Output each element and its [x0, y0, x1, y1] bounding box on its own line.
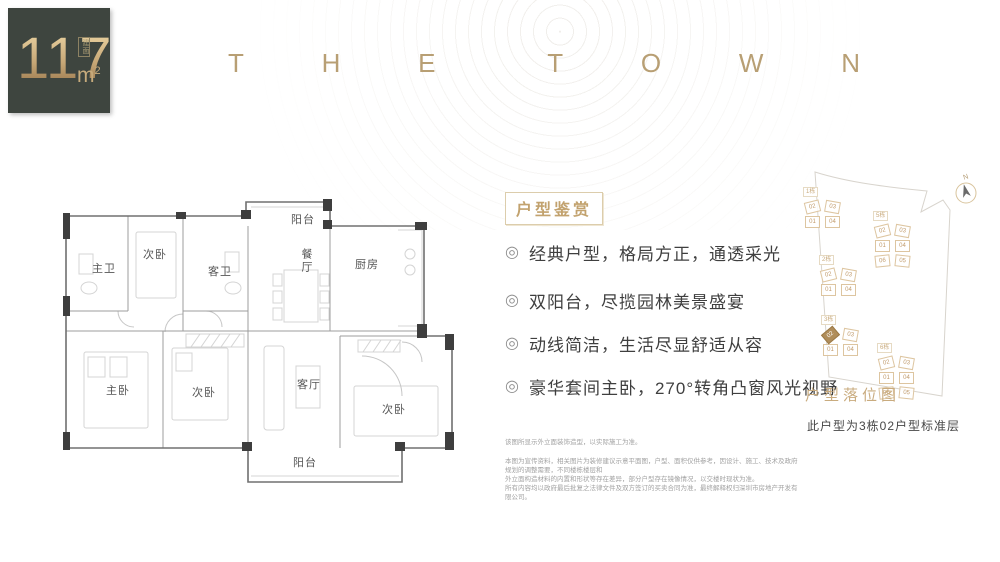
disclaimer-intro: 该图所显示外立面装饰造型，以实际施工为准。 — [505, 438, 801, 447]
area-badge: 117 建面 m2 — [8, 8, 110, 113]
compass: N — [951, 174, 981, 208]
unit-chip: 03 — [824, 200, 841, 214]
disclaimer: 该图所显示外立面装饰造型，以实际施工为准。 本图为宣传资料，相关图片为装修建议示… — [505, 438, 801, 502]
unit-chip: 03 — [842, 328, 859, 342]
map-cluster-3: 3栋 02 03 01 04 — [821, 308, 860, 356]
floor-plan-drawing — [58, 196, 462, 498]
unit-chip: 04 — [895, 240, 910, 252]
brand-letter: N — [841, 48, 860, 78]
unit-chip: 04 — [825, 216, 840, 228]
unit-chip: 05 — [898, 386, 914, 400]
unit-chip: 04 — [899, 372, 914, 384]
disclaimer-line: 所有内容均以政府最后批复之法律文件及双方签订的买卖合同为准，最终解释权归深圳市房… — [505, 484, 801, 502]
feature-text: 双阳台，尽揽园林美景盛宴 — [529, 288, 745, 313]
cluster-label: 1栋 — [803, 187, 818, 197]
room-label-bedroom-top: 次卧 — [143, 246, 167, 262]
disclaimer-line: 本图为宣传资料，相关图片为装修建议示意平面图，户型、面积仅供参考，因设计、施工、… — [505, 457, 801, 475]
unit-chip: 04 — [843, 344, 858, 356]
compass-icon — [954, 181, 978, 205]
map-caption: 此户型为3栋02户型标准层 — [807, 417, 960, 434]
unit-chip: 01 — [875, 240, 890, 252]
brand-wordmark: T H E T O W N — [228, 48, 860, 78]
feature-item: ◎ 双阳台，尽揽园林美景盛宴 — [505, 288, 745, 313]
unit-chip: 04 — [841, 284, 856, 296]
cluster-label: 2栋 — [819, 255, 834, 265]
brand-letter: H — [322, 48, 341, 78]
unit-chip: 02 — [874, 223, 891, 238]
room-label-balcony-top: 阳台 — [291, 211, 315, 227]
room-label-bedroom-right: 次卧 — [382, 401, 406, 417]
room-label-master-bath: 主卫 — [92, 260, 116, 276]
bullseye-bullet-icon: ◎ — [505, 379, 519, 395]
brand-letter: E — [418, 48, 435, 78]
area-unit-base: m — [77, 64, 95, 87]
room-label-living: 客厅 — [297, 376, 321, 392]
map-cluster-2: 2栋 02 03 01 04 — [819, 248, 858, 296]
brand-letter: O — [641, 48, 661, 78]
floor-plan: 主卫 次卧 客卫 阳台 餐厅 厨房 主卧 次卧 客厅 次卧 阳台 — [58, 196, 462, 498]
room-label-guest-bath: 客卫 — [208, 263, 232, 279]
feature-item: ◎ 经典户型，格局方正，通透采光 — [505, 240, 781, 265]
feature-text: 动线简洁，生活尽显舒适从容 — [529, 331, 763, 356]
site-location-map: 1栋 02 03 01 04 2栋 02 03 01 04 3栋 02 03 0… — [793, 160, 997, 460]
brand-letter: T — [547, 48, 563, 78]
feature-item: ◎ 动线简洁，生活尽显舒适从容 — [505, 331, 763, 356]
disclaimer-line: 外立面构造材料的内置和形状等存在差异，部分户型存在镜像情况，以交楼时现状为准。 — [505, 475, 801, 484]
bullseye-bullet-icon: ◎ — [505, 245, 519, 261]
unit-chip: 01 — [805, 216, 820, 228]
area-unit-sup: 2 — [95, 65, 101, 77]
map-cluster-1: 1栋 02 03 01 04 — [803, 180, 842, 228]
brand-letter: W — [739, 48, 764, 78]
room-label-bedroom-left: 次卧 — [192, 384, 216, 400]
bullseye-bullet-icon: ◎ — [505, 336, 519, 352]
map-title: 户型落位图 — [805, 384, 900, 405]
features-title: 户型鉴赏 — [505, 192, 603, 225]
unit-chip: 05 — [894, 254, 910, 268]
unit-chip: 02 — [878, 355, 895, 370]
unit-chip: 02 — [804, 199, 821, 214]
unit-chip: 01 — [821, 284, 836, 296]
map-cluster-4: 5栋 02 03 01 04 06 05 — [873, 204, 912, 267]
room-label-master-bedroom: 主卧 — [106, 382, 130, 398]
unit-chip: 01 — [823, 344, 838, 356]
feature-text: 豪华套间主卧，270°转角凸窗风光视野 — [529, 374, 838, 399]
unit-chip: 03 — [894, 224, 911, 238]
unit-chip: 02 — [820, 267, 837, 282]
room-label-dining: 餐厅 — [298, 248, 314, 274]
area-note: 建面 — [78, 37, 90, 57]
feature-item: ◎ 豪华套间主卧，270°转角凸窗风光视野 — [505, 374, 838, 399]
cluster-label: 3栋 — [821, 315, 836, 325]
cluster-label: 5栋 — [873, 211, 888, 221]
page: 117 建面 m2 T H E T O W N — [0, 0, 1000, 562]
feature-text: 经典户型，格局方正，通透采光 — [529, 240, 781, 265]
unit-chip: 01 — [879, 372, 894, 384]
area-unit: m2 — [77, 64, 101, 88]
bullseye-bullet-icon: ◎ — [505, 293, 519, 309]
unit-chip: 03 — [840, 268, 857, 282]
cluster-label: 6栋 — [877, 343, 892, 353]
brand-letter: T — [228, 48, 244, 78]
room-label-balcony-bottom: 阳台 — [293, 454, 317, 470]
unit-chip: 06 — [874, 254, 890, 268]
unit-chip-highlighted: 02 — [821, 326, 840, 345]
room-label-kitchen: 厨房 — [355, 256, 379, 272]
unit-chip: 03 — [898, 356, 915, 370]
